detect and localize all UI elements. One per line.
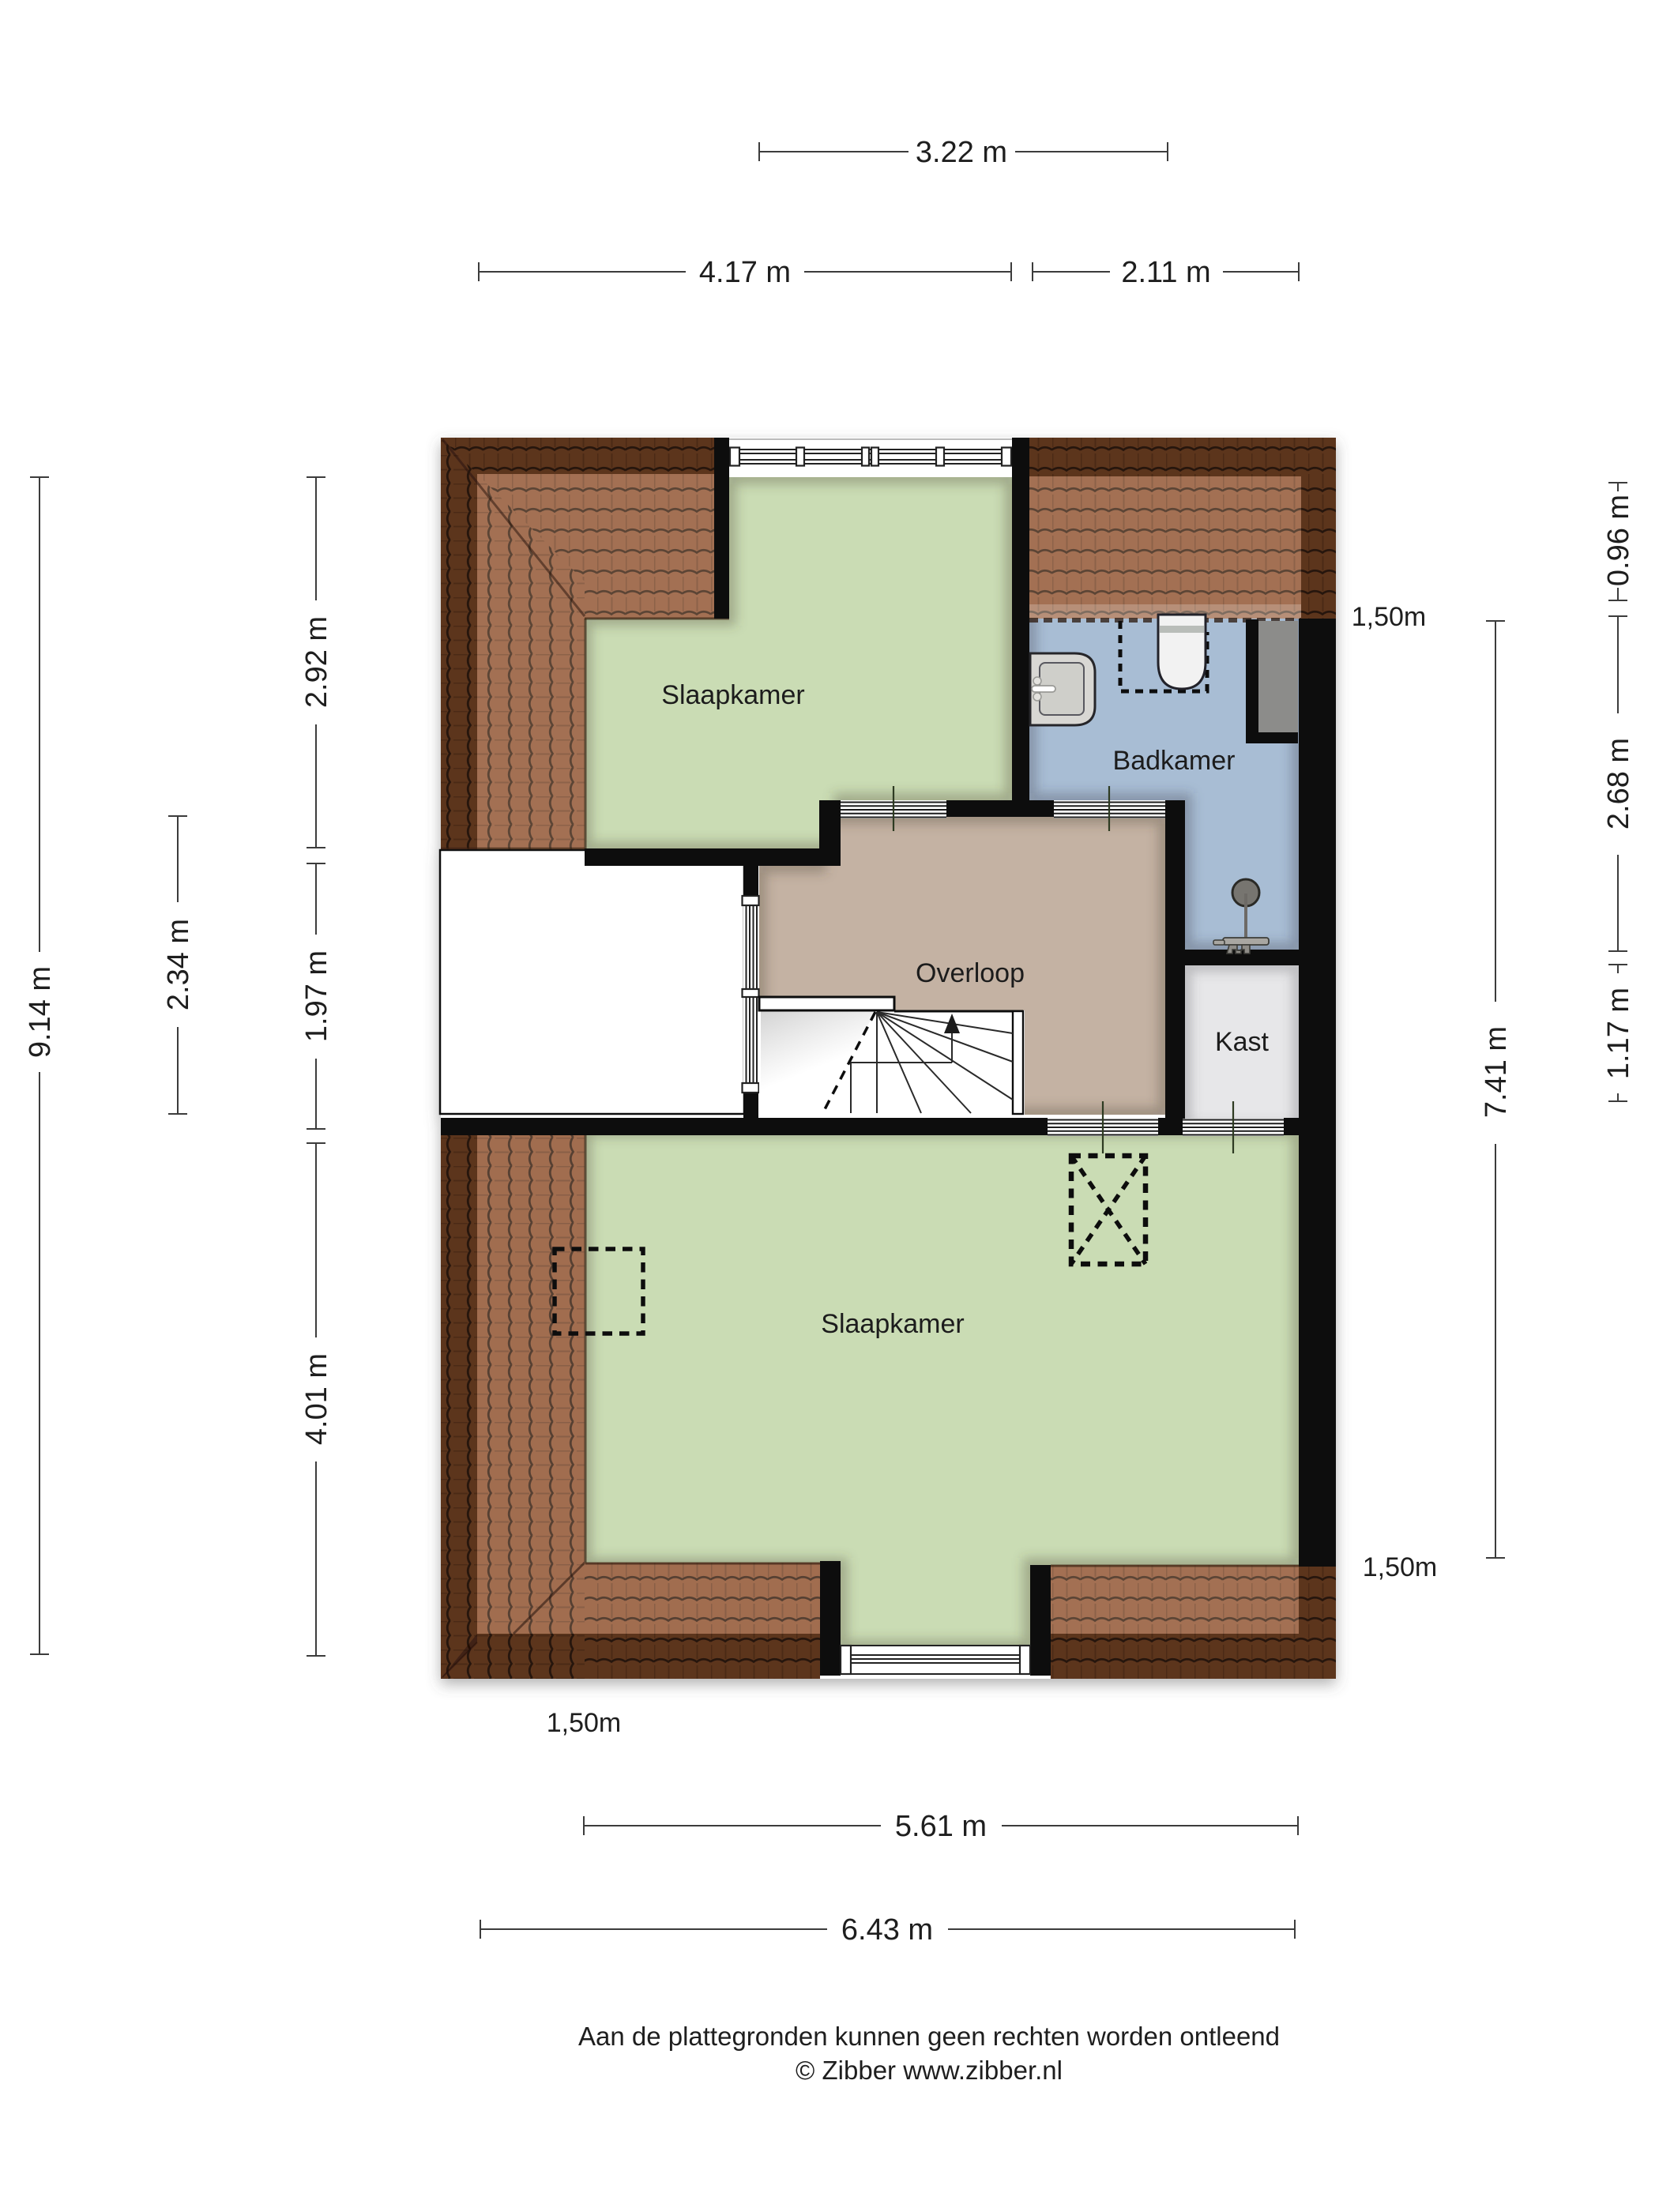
- svg-text:4.01 m: 4.01 m: [300, 1353, 333, 1445]
- svg-text:3.22 m: 3.22 m: [916, 136, 1007, 169]
- svg-text:Overloop: Overloop: [916, 958, 1025, 988]
- svg-text:5.61 m: 5.61 m: [895, 1810, 987, 1843]
- svg-text:Kast: Kast: [1215, 1027, 1270, 1057]
- svg-text:Slaapkamer: Slaapkamer: [821, 1309, 964, 1339]
- svg-text:1,50m: 1,50m: [1352, 602, 1427, 632]
- svg-text:7.41 m: 7.41 m: [1480, 1026, 1513, 1118]
- svg-text:1,50m: 1,50m: [1363, 1552, 1438, 1582]
- svg-text:2.34 m: 2.34 m: [162, 919, 195, 1010]
- svg-text:2.92 m: 2.92 m: [300, 616, 333, 708]
- svg-text:4.17 m: 4.17 m: [699, 256, 791, 289]
- svg-text:2.68 m: 2.68 m: [1602, 738, 1635, 829]
- svg-text:9.14 m: 9.14 m: [24, 966, 57, 1058]
- svg-text:Badkamer: Badkamer: [1113, 746, 1236, 776]
- svg-text:1.97 m: 1.97 m: [300, 950, 333, 1042]
- svg-text:2.11 m: 2.11 m: [1121, 256, 1210, 289]
- svg-text:Slaapkamer: Slaapkamer: [661, 680, 804, 710]
- svg-text:1,50m: 1,50m: [547, 1708, 622, 1738]
- svg-text:© Zibber www.zibber.nl: © Zibber www.zibber.nl: [796, 2056, 1063, 2085]
- svg-text:0.96 m: 0.96 m: [1602, 495, 1635, 586]
- svg-text:6.43 m: 6.43 m: [841, 1913, 933, 1947]
- svg-text:1.17 m: 1.17 m: [1602, 987, 1635, 1079]
- svg-text:Aan de plattegronden kunnen ge: Aan de plattegronden kunnen geen rechten…: [578, 2022, 1280, 2051]
